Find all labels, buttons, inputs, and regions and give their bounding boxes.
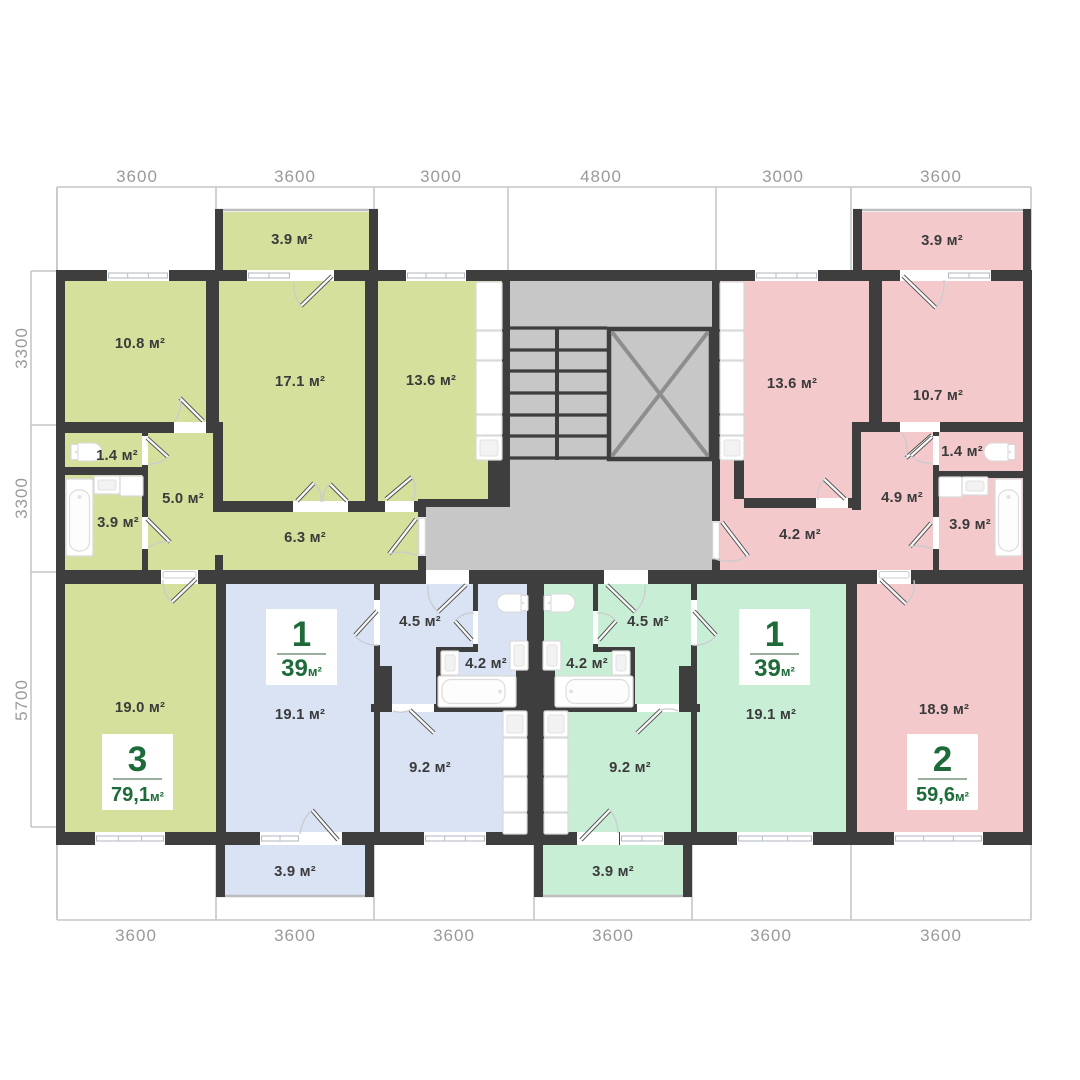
- svg-text:3.9 м²: 3.9 м²: [921, 233, 963, 249]
- svg-text:10.8 м²: 10.8 м²: [115, 336, 165, 352]
- svg-text:18.9 м²: 18.9 м²: [919, 702, 969, 718]
- svg-text:1.4 м²: 1.4 м²: [96, 448, 138, 464]
- svg-text:4800: 4800: [580, 167, 622, 186]
- svg-text:19.1 м²: 19.1 м²: [275, 707, 325, 723]
- svg-text:9.2 м²: 9.2 м²: [409, 760, 451, 776]
- svg-text:13.6 м²: 13.6 м²: [406, 373, 456, 389]
- svg-text:1.4 м²: 1.4 м²: [941, 444, 983, 460]
- svg-text:3.9 м²: 3.9 м²: [271, 232, 313, 248]
- svg-text:4.2 м²: 4.2 м²: [779, 527, 821, 543]
- svg-text:19.1 м²: 19.1 м²: [746, 707, 796, 723]
- svg-text:3300: 3300: [12, 477, 31, 519]
- svg-text:3.9 м²: 3.9 м²: [274, 864, 316, 880]
- svg-text:3600: 3600: [274, 926, 316, 945]
- svg-text:4.2 м²: 4.2 м²: [465, 656, 507, 672]
- svg-text:3600: 3600: [920, 926, 962, 945]
- svg-text:3600: 3600: [592, 926, 634, 945]
- svg-text:3.9 м²: 3.9 м²: [97, 515, 139, 531]
- svg-text:9.2 м²: 9.2 м²: [609, 760, 651, 776]
- svg-text:4.5 м²: 4.5 м²: [627, 614, 669, 630]
- svg-text:10.7 м²: 10.7 м²: [913, 388, 963, 404]
- svg-text:4.2 м²: 4.2 м²: [566, 656, 608, 672]
- svg-text:3000: 3000: [420, 167, 462, 186]
- svg-text:3: 3: [128, 740, 147, 779]
- svg-text:5.0 м²: 5.0 м²: [162, 491, 204, 507]
- svg-text:3.9 м²: 3.9 м²: [592, 864, 634, 880]
- svg-text:5700: 5700: [12, 679, 31, 721]
- svg-text:19.0 м²: 19.0 м²: [115, 700, 165, 716]
- svg-text:3300: 3300: [12, 327, 31, 369]
- svg-text:6.3 м²: 6.3 м²: [284, 530, 326, 546]
- svg-text:3600: 3600: [920, 167, 962, 186]
- svg-text:3600: 3600: [750, 926, 792, 945]
- svg-text:3600: 3600: [115, 926, 157, 945]
- svg-text:4.9 м²: 4.9 м²: [881, 490, 923, 506]
- svg-text:1: 1: [765, 615, 784, 654]
- svg-text:3600: 3600: [433, 926, 475, 945]
- svg-text:3.9 м²: 3.9 м²: [949, 517, 991, 533]
- svg-text:4.5 м²: 4.5 м²: [399, 614, 441, 630]
- svg-text:3600: 3600: [116, 167, 158, 186]
- svg-text:1: 1: [292, 615, 311, 654]
- svg-text:3000: 3000: [762, 167, 804, 186]
- svg-text:17.1 м²: 17.1 м²: [275, 374, 325, 390]
- svg-text:13.6 м²: 13.6 м²: [767, 376, 817, 392]
- svg-text:3600: 3600: [274, 167, 316, 186]
- svg-text:2: 2: [933, 740, 952, 779]
